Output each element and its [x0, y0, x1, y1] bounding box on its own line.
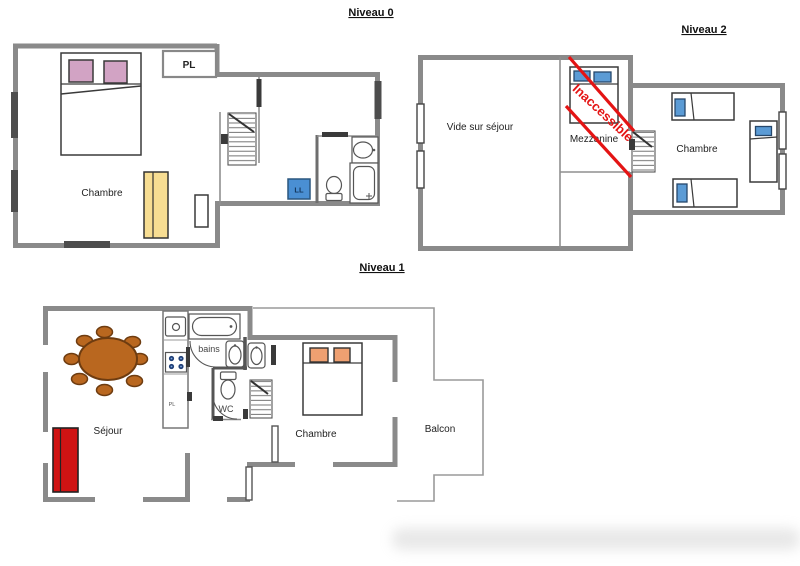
window [11, 92, 18, 138]
niveau0-title: Niveau 0 [348, 7, 393, 19]
paper-shadow-artifact [392, 528, 800, 550]
door-leaf [187, 392, 192, 401]
room-label-bains: bains [198, 344, 220, 354]
niveau2-title: Niveau 2 [681, 24, 726, 36]
chair [97, 385, 113, 396]
pillow [594, 72, 611, 82]
chair [64, 354, 79, 365]
bathroom: bains [186, 314, 265, 370]
chair [72, 374, 88, 385]
window [779, 154, 786, 189]
sofa [53, 428, 78, 492]
room-label-sejour: Séjour [94, 426, 124, 437]
single-bed-bottom [673, 179, 737, 207]
door-leaf [213, 416, 223, 421]
room-label-chambre2: Chambre [676, 144, 718, 155]
window [246, 467, 252, 500]
stair-post [243, 409, 248, 419]
double-bed [303, 343, 362, 415]
room-label-balcon: Balcon [425, 424, 456, 435]
window [64, 241, 110, 248]
pillow [310, 348, 328, 362]
floorplan-niveau-2: Niveau 2 [417, 24, 786, 251]
pillow [69, 60, 93, 82]
kitchen-closet-label: PL [169, 402, 176, 408]
window [779, 112, 786, 149]
floorplan-niveau-1: Niveau 1 [43, 262, 483, 502]
single-bed-right [750, 121, 777, 182]
window [417, 104, 424, 143]
door-leaf [271, 345, 276, 365]
closet-label: PL [183, 60, 196, 71]
niveau1-title: Niveau 1 [359, 262, 404, 274]
chair [127, 376, 143, 387]
window [11, 170, 18, 212]
floorplan-niveau-0: Niveau 0 PL [11, 7, 394, 248]
chair [97, 327, 113, 338]
stair-post [629, 139, 635, 150]
door-leaf [322, 132, 348, 137]
door-leaf [257, 79, 262, 107]
room-label-chambre0: Chambre [81, 188, 123, 199]
pillow [104, 61, 127, 83]
wardrobe [144, 172, 168, 238]
pillow [675, 99, 685, 116]
door-leaf [186, 347, 190, 367]
single-bed-top [672, 93, 734, 120]
room-label-vide: Vide sur séjour [447, 122, 514, 133]
dining-table [64, 327, 148, 396]
kitchen: PL [163, 311, 188, 428]
sink [248, 343, 265, 368]
staircase [243, 380, 272, 419]
pillow [756, 127, 772, 136]
stove [166, 353, 187, 373]
radiator [195, 195, 208, 227]
washing-machine: LL [288, 179, 310, 199]
wc: WC [211, 368, 247, 421]
table-top [79, 338, 137, 380]
window [272, 426, 278, 462]
pillow [677, 184, 687, 202]
bathroom-sink [352, 137, 378, 163]
staircase [228, 113, 256, 165]
floorplan-canvas: Niveau 0 PL [0, 0, 800, 566]
room-label-chambre1: Chambre [295, 429, 337, 440]
pillow [334, 348, 350, 362]
room-label-wc: WC [219, 404, 234, 414]
double-bed [61, 53, 141, 155]
sink [226, 341, 244, 367]
window [417, 151, 424, 188]
kitchen-sink [166, 317, 186, 336]
toilet [326, 177, 342, 201]
window [375, 81, 382, 119]
shower [350, 163, 378, 203]
toilet [221, 372, 237, 399]
washer-label: LL [294, 186, 304, 195]
